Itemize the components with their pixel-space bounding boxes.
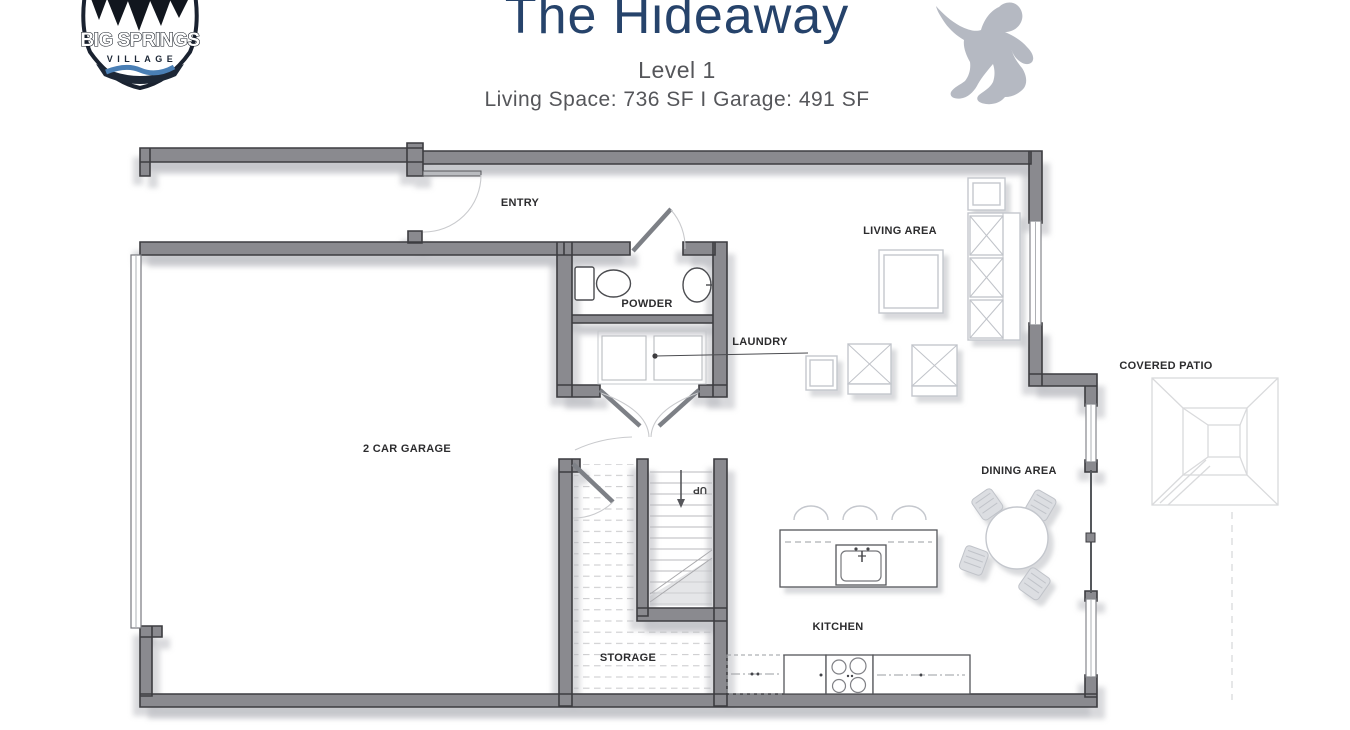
floor-plan: UP (0, 0, 1350, 730)
dining-window-upper (1086, 404, 1096, 462)
laundry-double-doors (600, 390, 699, 437)
washer-dryer (598, 331, 706, 384)
room-label-storage: STORAGE (600, 652, 656, 664)
lounge-chair-1 (848, 344, 891, 394)
entry-door (423, 171, 481, 232)
living-room-furniture (806, 178, 1020, 396)
stairs-up-label: UP (693, 484, 707, 495)
coffee-table (879, 250, 943, 313)
living-room-window (1030, 221, 1041, 325)
dining-set (958, 487, 1057, 601)
up-arrow (677, 470, 685, 508)
room-label-laundry: LAUNDRY (732, 336, 788, 348)
kitchen-island (780, 530, 937, 587)
sofa (968, 213, 1020, 340)
room-label-living-area: LIVING AREA (863, 225, 937, 237)
covered-patio-outline (1152, 378, 1278, 700)
floor-plan-sheet: BIG SPRINGS VILLAGE The Hideaway Level 1… (0, 0, 1350, 730)
dining-chair (958, 545, 989, 577)
dining-chair (1017, 566, 1052, 601)
kitchen-window (1086, 599, 1096, 677)
room-label-powder: POWDER (621, 298, 672, 310)
room-label-entry: ENTRY (501, 197, 540, 209)
lounge-chair-2 (912, 345, 957, 396)
side-table (806, 356, 837, 390)
bathroom-sink (683, 268, 712, 302)
room-label-kitchen: KITCHEN (813, 621, 864, 633)
bar-stools (794, 506, 926, 520)
toilet (575, 267, 631, 300)
powder-door (633, 209, 685, 251)
stairs: UP (650, 470, 712, 606)
cooktop (826, 655, 873, 694)
garage-door (131, 255, 141, 628)
kitchen-counter (727, 655, 970, 694)
room-label-dining-area: DINING AREA (981, 465, 1057, 477)
end-table (968, 178, 1005, 210)
dining-table (986, 507, 1048, 569)
room-label-garage: 2 CAR GARAGE (363, 443, 451, 455)
sliding-patio-door (1086, 470, 1095, 593)
island-sink (836, 545, 886, 585)
room-label-covered-patio: COVERED PATIO (1119, 360, 1212, 372)
